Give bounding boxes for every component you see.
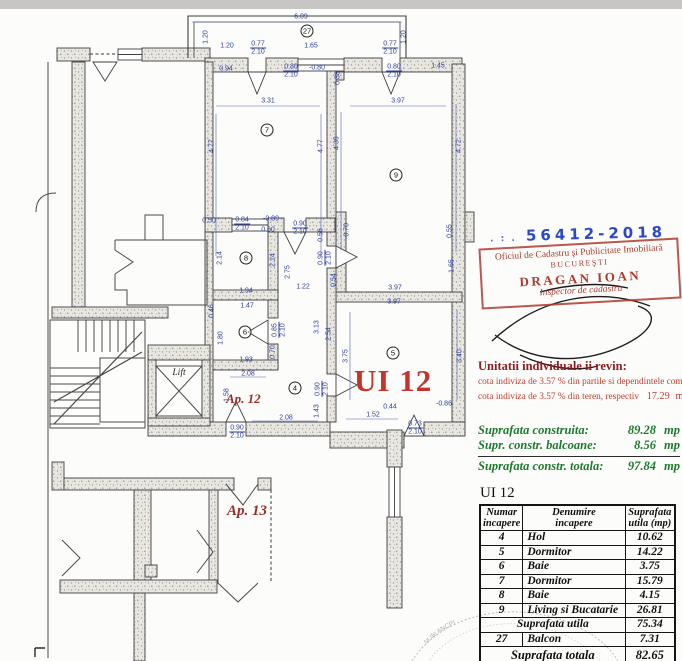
dimension-label: 0.902.10 xyxy=(315,381,330,397)
dimension-label: 4.77 xyxy=(209,139,216,153)
quota-line-2-text: cota indiviza de 3.57 % din teren, respe… xyxy=(478,391,639,403)
room-table: NumarincapereDenumireincapereSuprafataut… xyxy=(479,504,676,661)
dimension-label: 2.14 xyxy=(270,253,277,267)
dimension-label: 3.97 xyxy=(387,299,401,306)
dimension-label: 2.14 xyxy=(217,251,224,265)
areas-divider xyxy=(478,456,680,457)
quota-heading: Unitatii individuale ii revin: xyxy=(478,359,682,373)
dimension-label: 1.45 xyxy=(431,63,445,70)
dimension-label: 3.40 xyxy=(457,349,464,363)
table-row: 5Dormitor14.22 xyxy=(480,545,675,560)
scanned-cadastral-plan: ta de ANCPI 6.091.201.201.200.772.101.65… xyxy=(0,0,682,661)
dimension-label: 1.80 xyxy=(218,331,225,345)
dimension-label: 0.902.10 xyxy=(292,221,308,236)
dimension-label: 1.93 xyxy=(239,357,253,364)
dimension-label: 1.20 xyxy=(220,43,234,50)
areas-summary: Suprafata construita: 89.28 mp Supr. con… xyxy=(478,423,680,474)
area-row-balconies: Supr. constr. balcoane: 8.56 mp xyxy=(478,438,680,453)
dimension-label: 0.772.10 xyxy=(382,41,398,56)
unit-title-on-plan: UI 12 xyxy=(354,363,432,399)
dimension-label: 0.852.10 xyxy=(272,322,287,338)
dimension-label: 4.72 xyxy=(456,139,463,153)
svg-text:ta de ANCPI: ta de ANCPI xyxy=(423,619,457,645)
dimension-label: 1.65 xyxy=(449,259,456,273)
room-table-title: UI 12 xyxy=(480,485,681,502)
dimension-label: 1.22 xyxy=(296,284,310,291)
area-row-balconies-label: Supr. constr. balcoane: xyxy=(478,438,614,453)
table-body: 4Hol10.625Dormitor14.226Baie3.757Dormito… xyxy=(480,531,675,661)
room-number-5: 5 xyxy=(387,347,400,360)
dimension-label: 0.46 xyxy=(209,304,216,318)
dimension-label: 1.20 xyxy=(203,30,210,44)
table-header: Numarincapere xyxy=(480,505,523,531)
dimension-label: 4.77 xyxy=(318,139,325,153)
area-row-total-label: Suprafata constr. totala: xyxy=(478,459,614,474)
table-row: 6Baie3.75 xyxy=(480,560,675,575)
dimension-label: 0.902.10 xyxy=(229,425,245,440)
quota-line-1: cota indiviza de 3.57 % din partile si d… xyxy=(478,376,676,388)
quota-note: Unitatii individuale ii revin: cota indi… xyxy=(478,359,682,403)
dimension-label: 0.802.10 xyxy=(283,64,299,79)
area-row-balconies-value: 8.56 xyxy=(614,438,656,453)
dimension-label: 0.902.10 xyxy=(318,250,333,266)
table-row: 8Baie4.15 xyxy=(480,589,675,604)
dimension-label: 3.13 xyxy=(314,320,321,334)
dimension-label: 0.842.10 xyxy=(234,217,250,232)
table-row: Suprafata utila75.34 xyxy=(480,618,675,633)
room-number-27: 27 xyxy=(301,25,314,38)
dimension-label: 0.772.10 xyxy=(250,41,266,56)
dimension-label: 6.09 xyxy=(294,14,308,21)
quota-line-2-unit: mp xyxy=(675,391,682,403)
area-row-built-unit: mp xyxy=(656,423,680,438)
dimension-label: 2.08 xyxy=(279,415,293,422)
dimension-label: 0.55 xyxy=(447,224,454,238)
dimension-label: 2.08 xyxy=(241,371,255,378)
dimension-label: 3.97 xyxy=(391,98,405,105)
room-number-8: 8 xyxy=(240,252,253,265)
dimension-label: 2.54 xyxy=(326,327,333,341)
dimension-label: -0.70 xyxy=(344,223,351,239)
corner-stamp-text: ta de ANCPI xyxy=(423,619,457,645)
dimension-label: 1.43 xyxy=(314,404,321,418)
dimension-label: 1.52 xyxy=(366,412,380,419)
table-row: Suprafata totala82.65 xyxy=(480,647,675,661)
dimension-label: 3.97 xyxy=(388,285,402,292)
table-row: 27Balcon7.31 xyxy=(480,632,675,647)
quota-line-1-text: cota indiviza de 3.57 % din partile si d… xyxy=(478,376,682,388)
dimension-label: 2.75 xyxy=(285,265,292,279)
dimension-label: 0.54 xyxy=(331,273,338,287)
table-row: 4Hol10.62 xyxy=(480,531,675,546)
area-row-total: Suprafata constr. totala: 97.84 mp xyxy=(478,459,680,474)
dimension-label: 1.47 xyxy=(240,303,254,310)
room-number-9: 9 xyxy=(390,169,403,182)
dimension-label: 0.50 xyxy=(202,218,216,225)
dimension-label: -0.86 xyxy=(436,401,452,408)
area-row-total-value: 97.84 xyxy=(614,459,656,474)
registration-number-prefix: . : . xyxy=(490,234,517,245)
dimension-label: 0.60 xyxy=(261,227,275,234)
table-header-row: NumarincapereDenumireincapereSuprafataut… xyxy=(480,505,675,531)
room-number-6: 6 xyxy=(239,326,252,339)
table-header: Suprafatautila (mp) xyxy=(625,505,675,531)
lift-label: Lift xyxy=(172,368,185,378)
dimension-label: -0.89 xyxy=(263,216,279,223)
dimension-label: 3.31 xyxy=(261,98,275,105)
dimension-label: 1.65 xyxy=(304,43,318,50)
table-row: 9Living si Bucatarie26.81 xyxy=(480,603,675,618)
dimension-label: -0.80 xyxy=(309,65,325,72)
cadastre-office-stamp: Oficiul de Cadastru şi Publicitate Imobi… xyxy=(478,237,681,309)
dimension-label: 4.39 xyxy=(334,136,341,150)
area-row-built-label: Suprafata construita: xyxy=(478,423,614,438)
dimension-label: 1.94 xyxy=(239,288,253,295)
quota-line-2: cota indiviza de 3.57 % din teren, respe… xyxy=(478,391,676,403)
apartment-13-label: Ap. 13 xyxy=(227,503,267,520)
room-table-block: UI 12 NumarincapereDenumireincapereSupra… xyxy=(479,485,681,661)
room-number-4: 4 xyxy=(289,382,302,395)
area-row-total-unit: mp xyxy=(656,459,680,474)
dimension-label: 0.70 xyxy=(270,345,277,359)
dimension-label: 0.56 xyxy=(318,228,325,242)
dimension-label: 0.732.10 xyxy=(407,421,423,436)
area-row-built: Suprafata construita: 89.28 mp xyxy=(478,423,680,438)
quota-line-2-value: 17.29 xyxy=(647,391,670,403)
dimension-label: 0.38 xyxy=(335,71,342,85)
dimension-label: 0.94 xyxy=(219,66,233,73)
table-header: Denumireincapere xyxy=(523,505,625,531)
area-row-built-value: 89.28 xyxy=(614,423,656,438)
dimension-label: 1.20 xyxy=(401,30,408,44)
dimension-label: 0.44 xyxy=(383,404,397,411)
dimension-label: 0.802.10 xyxy=(386,64,402,79)
room-number-7: 7 xyxy=(261,124,274,137)
apartment-12-label: Ap. 12 xyxy=(226,391,261,407)
table-row: 7Dormitor15.79 xyxy=(480,574,675,589)
dimension-label: 3.75 xyxy=(343,349,350,363)
area-row-balconies-unit: mp xyxy=(656,438,680,453)
